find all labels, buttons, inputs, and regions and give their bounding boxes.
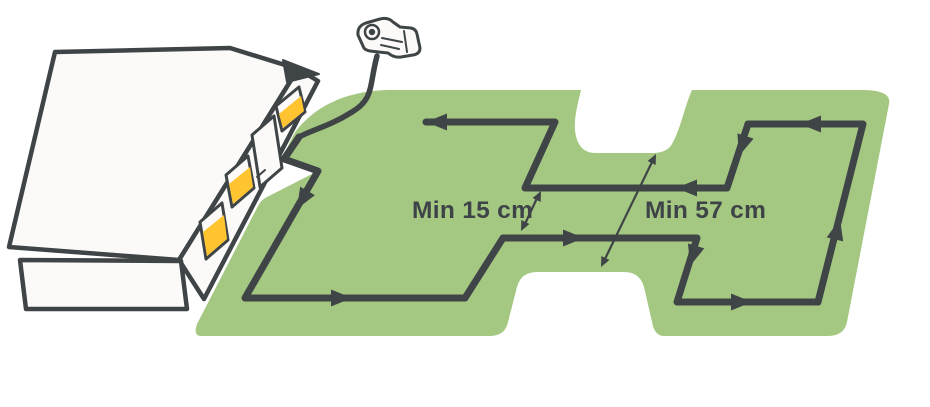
house-base-wall: [20, 260, 187, 309]
installation-diagram: Min 15 cm Min 57 cm: [0, 0, 930, 407]
diagram-canvas: Min 15 cm Min 57 cm: [0, 0, 930, 407]
min-15-label: Min 15 cm: [412, 197, 533, 224]
min-57-label: Min 57 cm: [645, 197, 766, 224]
power-plug-icon: [358, 18, 420, 57]
